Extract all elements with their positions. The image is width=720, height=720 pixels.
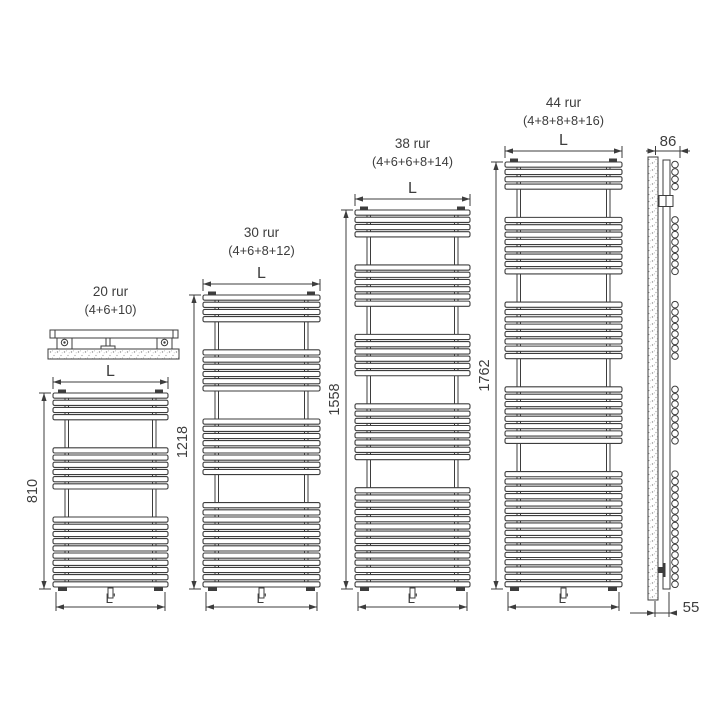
tube-row bbox=[355, 546, 470, 551]
tube-row bbox=[203, 309, 320, 314]
tube-row bbox=[505, 552, 622, 557]
tube-cross-section bbox=[672, 345, 679, 352]
tube-row bbox=[505, 472, 622, 477]
tube-cross-section bbox=[672, 176, 679, 183]
tube-row bbox=[53, 582, 168, 587]
tube-cross-section bbox=[672, 415, 679, 422]
radiator-formula-label: (4+8+8+8+16) bbox=[523, 113, 604, 128]
foot bbox=[208, 587, 217, 591]
tube-row bbox=[355, 433, 470, 438]
tube-cross-section bbox=[672, 331, 679, 338]
width-dimension-label-bottom: L' bbox=[558, 591, 568, 606]
tube-row bbox=[505, 317, 622, 322]
dimension-arrow bbox=[355, 196, 363, 201]
dimension-arrow bbox=[157, 604, 165, 609]
tube-cross-section bbox=[672, 537, 679, 544]
tube-row bbox=[203, 517, 320, 522]
tube-row bbox=[505, 508, 622, 513]
tube-row bbox=[505, 494, 622, 499]
tube-row bbox=[53, 531, 168, 536]
radiator-formula-label: (4+6+10) bbox=[85, 302, 137, 317]
tube-row bbox=[505, 545, 622, 550]
wall-section bbox=[648, 157, 658, 600]
tube-cross-section bbox=[672, 161, 679, 168]
depth-dimension-label: 86 bbox=[660, 133, 677, 150]
tube-row bbox=[355, 440, 470, 445]
dimension-arrow bbox=[160, 379, 168, 384]
tube-cross-section bbox=[672, 530, 679, 537]
tube-cross-section bbox=[672, 253, 679, 260]
tube-row bbox=[505, 479, 622, 484]
tube-row bbox=[203, 386, 320, 391]
tube-cross-section bbox=[672, 401, 679, 408]
foot bbox=[608, 587, 617, 591]
tube-row bbox=[505, 225, 622, 230]
tube-row bbox=[203, 469, 320, 474]
tube-row bbox=[505, 486, 622, 491]
dimension-arrow bbox=[191, 295, 196, 303]
tube-row bbox=[505, 177, 622, 182]
tube-row bbox=[53, 469, 168, 474]
tube-row bbox=[505, 169, 622, 174]
tube-row bbox=[505, 232, 622, 237]
dimension-arrow bbox=[358, 604, 366, 609]
width-dimension-label: L bbox=[559, 132, 568, 149]
tube-cross-section bbox=[672, 515, 679, 522]
width-dimension-label-bottom: L' bbox=[407, 591, 417, 606]
tube-row bbox=[505, 516, 622, 521]
tube-row bbox=[355, 217, 470, 222]
tube-row bbox=[355, 575, 470, 580]
tube-row bbox=[355, 582, 470, 587]
tube-row bbox=[355, 287, 470, 292]
tube-row bbox=[203, 448, 320, 453]
tube-row bbox=[53, 393, 168, 398]
tube-row bbox=[203, 575, 320, 580]
tube-row bbox=[505, 431, 622, 436]
height-dimension-label: 810 bbox=[25, 479, 41, 503]
tube-row bbox=[505, 387, 622, 392]
tube-row bbox=[203, 419, 320, 424]
tube-cross-section bbox=[672, 338, 679, 345]
radiator-name-label: 30 rur bbox=[244, 225, 280, 240]
tube-row bbox=[203, 295, 320, 300]
bracket-screw-center bbox=[163, 341, 165, 343]
tube-row bbox=[355, 363, 470, 368]
tube-row bbox=[53, 484, 168, 489]
tube-row bbox=[203, 441, 320, 446]
tube-row bbox=[53, 455, 168, 460]
tube-row bbox=[355, 210, 470, 215]
tube-cross-section bbox=[672, 217, 679, 224]
tube-row bbox=[203, 582, 320, 587]
tube-cross-section bbox=[672, 224, 679, 231]
tube-row bbox=[505, 247, 622, 252]
tube-row bbox=[203, 364, 320, 369]
tube-cross-section bbox=[672, 478, 679, 485]
tube-row bbox=[505, 438, 622, 443]
tube-row bbox=[53, 400, 168, 405]
tube-row bbox=[355, 495, 470, 500]
tube-cross-section bbox=[672, 301, 679, 308]
tube-row bbox=[53, 546, 168, 551]
dimension-arrow bbox=[191, 581, 196, 589]
tube-row bbox=[505, 261, 622, 266]
tube-cross-section bbox=[672, 493, 679, 500]
tube-row bbox=[203, 503, 320, 508]
tube-cross-section bbox=[672, 559, 679, 566]
tube-row bbox=[53, 553, 168, 558]
tube-row bbox=[355, 349, 470, 354]
foot bbox=[360, 587, 369, 591]
width-dimension-label: L bbox=[408, 180, 417, 197]
tube-row bbox=[53, 477, 168, 482]
tube-row bbox=[505, 254, 622, 259]
dimension-arrow bbox=[41, 393, 46, 401]
side-view: 8655 bbox=[630, 133, 699, 617]
tube-cross-section bbox=[672, 408, 679, 415]
tube-row bbox=[355, 279, 470, 284]
radiator-formula-label: (4+6+6+8+14) bbox=[372, 154, 453, 169]
tube-row bbox=[355, 553, 470, 558]
tube-row bbox=[355, 265, 470, 270]
tube-row bbox=[203, 357, 320, 362]
tube-row bbox=[505, 184, 622, 189]
dimension-arrow bbox=[648, 148, 656, 153]
tube-row bbox=[203, 546, 320, 551]
foot bbox=[306, 587, 315, 591]
tube-row bbox=[53, 524, 168, 529]
tube-cross-section bbox=[672, 423, 679, 430]
tube-row bbox=[505, 162, 622, 167]
radiator-dimension-diagram: 20 rur(4+6+10)L810L'30 rur(4+6+8+12)L121… bbox=[0, 0, 720, 720]
radiator-name-label: 20 rur bbox=[93, 284, 129, 299]
tube-row bbox=[53, 539, 168, 544]
tube-row bbox=[355, 224, 470, 229]
width-dimension-label: L bbox=[257, 265, 266, 282]
wall-distance-dimension-label: 55 bbox=[683, 599, 700, 616]
tube-row bbox=[355, 272, 470, 277]
tube-row bbox=[203, 560, 320, 565]
tube-cross-section bbox=[672, 500, 679, 507]
tube-row bbox=[505, 239, 622, 244]
tube-row bbox=[355, 531, 470, 536]
dimension-arrow bbox=[614, 148, 622, 153]
tube-row bbox=[203, 567, 320, 572]
tube-row bbox=[203, 350, 320, 355]
tube-cross-section bbox=[672, 268, 679, 275]
tube-row bbox=[355, 524, 470, 529]
tube-row bbox=[355, 560, 470, 565]
height-dimension-label: 1558 bbox=[327, 383, 343, 415]
dimension-arrow bbox=[505, 148, 513, 153]
tube-row bbox=[355, 294, 470, 299]
tube-cross-section bbox=[672, 544, 679, 551]
dimension-arrow bbox=[493, 162, 498, 170]
foot bbox=[58, 587, 67, 591]
tube-row bbox=[203, 317, 320, 322]
tube-row bbox=[53, 575, 168, 580]
radiator-name-label: 44 rur bbox=[546, 95, 582, 110]
tube-row bbox=[355, 334, 470, 339]
foot bbox=[510, 587, 519, 591]
vertical-collector bbox=[663, 160, 670, 589]
tube-row bbox=[505, 567, 622, 572]
tube-cross-section bbox=[672, 231, 679, 238]
tube-row bbox=[203, 379, 320, 384]
tube-row bbox=[355, 356, 470, 361]
tube-row bbox=[505, 501, 622, 506]
tube-cross-section bbox=[672, 393, 679, 400]
tube-row bbox=[53, 567, 168, 572]
dimension-arrow bbox=[312, 281, 320, 286]
tube-row bbox=[505, 353, 622, 358]
tube-cross-section bbox=[672, 566, 679, 573]
tube-row bbox=[53, 560, 168, 565]
tube-row bbox=[505, 523, 622, 528]
radiator-formula-label: (4+6+8+12) bbox=[228, 243, 295, 258]
tube-row bbox=[203, 455, 320, 460]
tube-row bbox=[355, 509, 470, 514]
radiator-name-label: 38 rur bbox=[395, 136, 431, 151]
dimension-arrow bbox=[680, 148, 688, 153]
tube-row bbox=[355, 232, 470, 237]
tube-row bbox=[355, 426, 470, 431]
tube-cross-section bbox=[672, 316, 679, 323]
tube-cross-section bbox=[672, 239, 679, 246]
dimension-arrow bbox=[343, 210, 348, 218]
tube-row bbox=[203, 524, 320, 529]
tube-row bbox=[355, 454, 470, 459]
dimension-arrow bbox=[309, 604, 317, 609]
wall-section bbox=[48, 349, 179, 359]
tube-row bbox=[505, 402, 622, 407]
wall-mount-top-view bbox=[48, 330, 179, 359]
tube-row bbox=[355, 418, 470, 423]
tube-row bbox=[203, 539, 320, 544]
tube-cross-section bbox=[672, 169, 679, 176]
tube-cross-section bbox=[672, 183, 679, 190]
tube-row bbox=[505, 409, 622, 414]
tube-cross-section bbox=[672, 438, 679, 445]
dimension-arrow bbox=[56, 604, 64, 609]
tube-row bbox=[505, 269, 622, 274]
tube-row bbox=[355, 502, 470, 507]
tube-row bbox=[203, 371, 320, 376]
tube-row bbox=[505, 324, 622, 329]
tube-row bbox=[355, 411, 470, 416]
bracket-screw-center bbox=[63, 341, 65, 343]
dimension-arrow bbox=[508, 604, 516, 609]
tube-cross-section bbox=[672, 353, 679, 360]
width-dimension-label-bottom: L' bbox=[256, 591, 266, 606]
dimension-arrow bbox=[343, 581, 348, 589]
radiator-front-view: 38 rur(4+6+6+8+14)L1558L' bbox=[327, 136, 470, 611]
dimension-arrow bbox=[647, 610, 655, 615]
tube-row bbox=[355, 342, 470, 347]
tube-row bbox=[355, 538, 470, 543]
width-dimension-label: L bbox=[106, 363, 115, 380]
radiator-front-view: 44 rur(4+8+8+8+16)L1762L' bbox=[477, 95, 622, 611]
tube-row bbox=[203, 433, 320, 438]
tube-row bbox=[53, 462, 168, 467]
dimension-arrow bbox=[203, 281, 211, 286]
dimension-arrow bbox=[611, 604, 619, 609]
tube-row bbox=[203, 531, 320, 536]
tube-row bbox=[355, 404, 470, 409]
tube-row bbox=[505, 217, 622, 222]
tube-row bbox=[53, 415, 168, 420]
tube-cross-section bbox=[672, 309, 679, 316]
tube-cross-section bbox=[672, 323, 679, 330]
tube-row bbox=[355, 488, 470, 493]
tube-row bbox=[53, 517, 168, 522]
tube-row bbox=[53, 448, 168, 453]
tube-row bbox=[203, 510, 320, 515]
tube-row bbox=[505, 582, 622, 587]
tube-row bbox=[53, 407, 168, 412]
tube-row bbox=[355, 517, 470, 522]
dimension-arrow bbox=[462, 196, 470, 201]
tube-row bbox=[203, 462, 320, 467]
tube-row bbox=[355, 301, 470, 306]
technical-drawing: 20 rur(4+6+10)L810L'30 rur(4+6+8+12)L121… bbox=[0, 0, 720, 720]
dimension-arrow bbox=[53, 379, 61, 384]
tube-row bbox=[505, 560, 622, 565]
tube-row bbox=[505, 346, 622, 351]
width-dimension-label-bottom: L' bbox=[105, 591, 115, 606]
tube-row bbox=[505, 302, 622, 307]
tube-row bbox=[505, 416, 622, 421]
tube-row bbox=[355, 567, 470, 572]
tube-row bbox=[505, 331, 622, 336]
tube-cross-section bbox=[672, 430, 679, 437]
height-dimension-label: 1218 bbox=[175, 426, 191, 458]
tube-row bbox=[505, 424, 622, 429]
tube-cross-section bbox=[672, 261, 679, 268]
foot bbox=[154, 587, 163, 591]
tube-row bbox=[203, 553, 320, 558]
tube-row bbox=[505, 309, 622, 314]
tube-row bbox=[203, 426, 320, 431]
tube-row bbox=[505, 339, 622, 344]
dimension-arrow bbox=[493, 581, 498, 589]
tube-row bbox=[203, 302, 320, 307]
tube-row bbox=[505, 538, 622, 543]
tube-cross-section bbox=[672, 552, 679, 559]
tube-row bbox=[505, 574, 622, 579]
tube-cross-section bbox=[672, 471, 679, 478]
dimension-arrow bbox=[41, 581, 46, 589]
tube-row bbox=[355, 447, 470, 452]
radiator-front-view: 30 rur(4+6+8+12)L1218L' bbox=[175, 225, 320, 611]
dimension-arrow bbox=[669, 610, 677, 615]
tube-cross-section bbox=[672, 508, 679, 515]
tube-cross-section bbox=[672, 574, 679, 581]
dimension-arrow bbox=[459, 604, 467, 609]
tube-cross-section bbox=[672, 486, 679, 493]
foot bbox=[456, 587, 465, 591]
tube-cross-section bbox=[672, 386, 679, 393]
dimension-arrow bbox=[206, 604, 214, 609]
top-tube bbox=[50, 330, 178, 338]
tube-cross-section bbox=[672, 246, 679, 253]
height-dimension-label: 1762 bbox=[477, 359, 493, 391]
tube-cross-section bbox=[672, 522, 679, 529]
tube-row bbox=[505, 530, 622, 535]
tube-row bbox=[355, 371, 470, 376]
tube-cross-section bbox=[672, 581, 679, 588]
tube-row bbox=[505, 394, 622, 399]
